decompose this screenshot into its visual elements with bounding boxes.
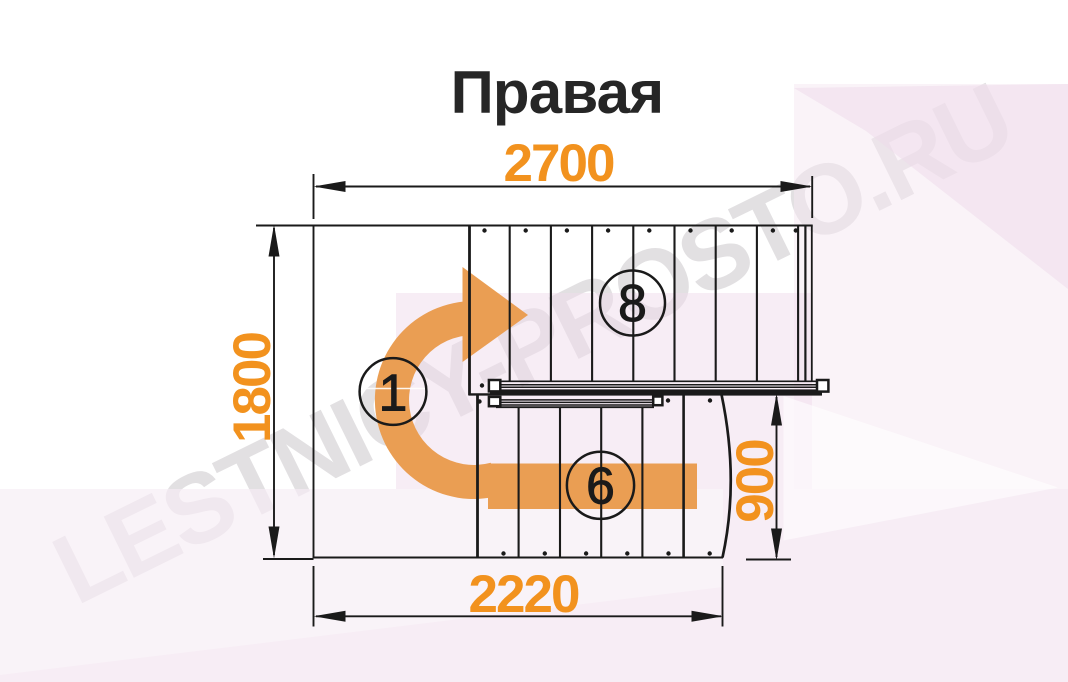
svg-text:8: 8 bbox=[618, 275, 647, 333]
svg-text:2220: 2220 bbox=[469, 565, 579, 624]
svg-text:1: 1 bbox=[379, 365, 408, 423]
svg-text:Правая: Правая bbox=[451, 59, 664, 126]
svg-text:2700: 2700 bbox=[504, 134, 614, 193]
svg-text:6: 6 bbox=[586, 458, 615, 516]
